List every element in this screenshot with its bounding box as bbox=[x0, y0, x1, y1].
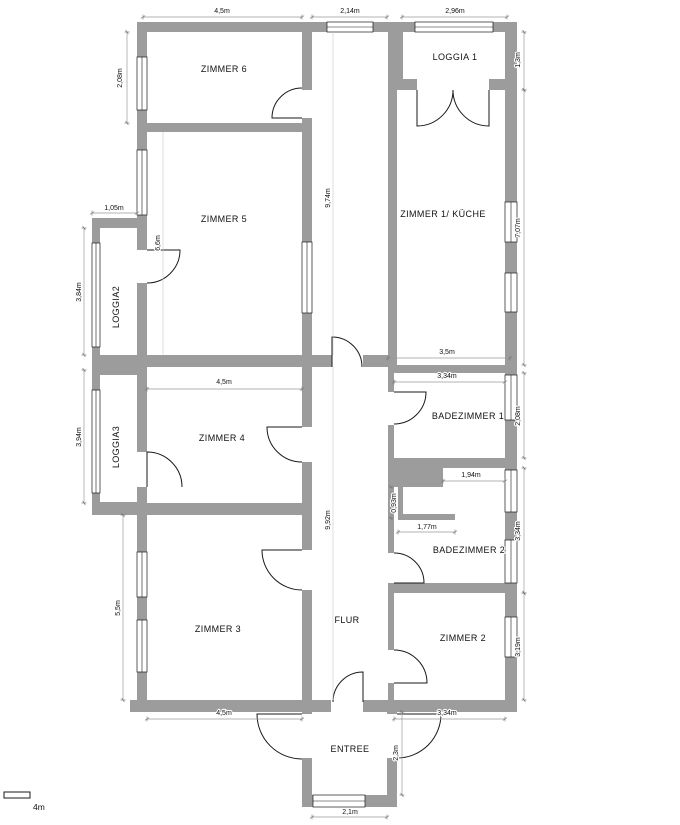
dim-badezimmer2-right: 3,34m bbox=[515, 521, 522, 541]
dim-loggia2-top: 1,05m bbox=[104, 205, 124, 212]
door-arc-zimmer3 bbox=[262, 550, 302, 590]
dim-zimmer5-interior: 6,6m bbox=[155, 235, 162, 251]
dim-entree-bottom: 2,1m bbox=[342, 809, 358, 816]
door-arc-zimmer6 bbox=[272, 88, 302, 118]
room-label-zimmer3: ZIMMER 3 bbox=[195, 624, 241, 634]
dim-top-middle: 2,14m bbox=[340, 8, 360, 15]
room-label-badezimmer1: BADEZIMMER 1 bbox=[432, 411, 504, 421]
dim-flur-upper: 9,74m bbox=[325, 188, 332, 208]
dim-zimmer4-top: 4,5m bbox=[216, 379, 232, 386]
dim-loggia1-right: 1,3m bbox=[515, 52, 522, 68]
dim-top-left: 4,5m bbox=[214, 8, 230, 15]
dim-zimmer3-left: 5,5m bbox=[115, 600, 122, 616]
floor-plan: 4,5m 2,14m 2,96m 2,08m 1,3m 7,07m 9,74m … bbox=[0, 0, 680, 825]
door-arc-loggia1-right bbox=[453, 90, 489, 126]
dim-top-right: 2,96m bbox=[445, 8, 465, 15]
dim-badezimmer1-right: 2,08m bbox=[515, 406, 522, 426]
door-arc-flur-entree bbox=[333, 672, 363, 702]
room-label-entree: ENTREE bbox=[331, 744, 370, 754]
dim-zimmer6-left: 2,08m bbox=[117, 68, 124, 88]
dim-zimmer2-right: 3,19m bbox=[515, 637, 522, 657]
dim-flur-lower: 9,92m bbox=[325, 510, 332, 530]
dim-badezimmer1-top: 3,34m bbox=[437, 373, 457, 380]
room-label-zimmer2: ZIMMER 2 bbox=[440, 633, 486, 643]
scale-bar-label: 4m bbox=[33, 802, 45, 812]
room-label-loggia2: LOGGIA2 bbox=[111, 286, 121, 328]
scale-bar bbox=[4, 792, 30, 798]
floor-plan-page: 4,5m 2,14m 2,96m 2,08m 1,3m 7,07m 9,74m … bbox=[0, 0, 680, 825]
room-label-zimmer1-kueche: ZIMMER 1/ KÜCHE bbox=[400, 209, 486, 219]
room-label-zimmer6: ZIMMER 6 bbox=[201, 64, 247, 74]
door-arc-badezimmer1 bbox=[394, 392, 426, 424]
door-arc-badezimmer2 bbox=[394, 553, 424, 583]
doors bbox=[147, 88, 489, 759]
door-arc-zimmer4-left bbox=[147, 452, 182, 487]
room-label-badezimmer2: BADEZIMMER 2 bbox=[433, 545, 505, 555]
room-label-loggia3: LOGGIA3 bbox=[111, 426, 121, 468]
scale-bar-group: 4m bbox=[4, 792, 45, 812]
door-arc-loggia1-left bbox=[417, 90, 453, 126]
room-label-flur: FLUR bbox=[334, 615, 359, 625]
dim-zimmer1-right: 7,07m bbox=[515, 218, 522, 238]
dim-badezimmer2-niche-width: 1,77m bbox=[417, 524, 437, 531]
room-label-zimmer4: ZIMMER 4 bbox=[199, 433, 245, 443]
dim-zimmer3-bottom: 4,5m bbox=[216, 710, 232, 717]
dim-badezimmer2-top: 1,94m bbox=[461, 472, 481, 479]
dim-loggia3-left: 3,94m bbox=[76, 427, 83, 447]
room-label-loggia1: LOGGIA 1 bbox=[433, 52, 478, 62]
dim-entree-right: 2,3m bbox=[393, 745, 400, 761]
dim-loggia2-left: 3,84m bbox=[76, 282, 83, 302]
room-label-zimmer5: ZIMMER 5 bbox=[201, 214, 247, 224]
door-arc-entree-left bbox=[257, 714, 302, 759]
door-arc-zimmer5-loggia2 bbox=[147, 250, 180, 283]
dim-zimmer1-bottom: 3,5m bbox=[439, 349, 455, 356]
door-arc-entree-right bbox=[397, 714, 441, 758]
dim-badezimmer2-niche-height: 0,93m bbox=[391, 493, 398, 513]
door-arc-zimmer2 bbox=[394, 650, 427, 683]
door-arc-zimmer4-flur bbox=[267, 427, 302, 462]
dim-zimmer2-bottom: 3,34m bbox=[437, 710, 457, 717]
